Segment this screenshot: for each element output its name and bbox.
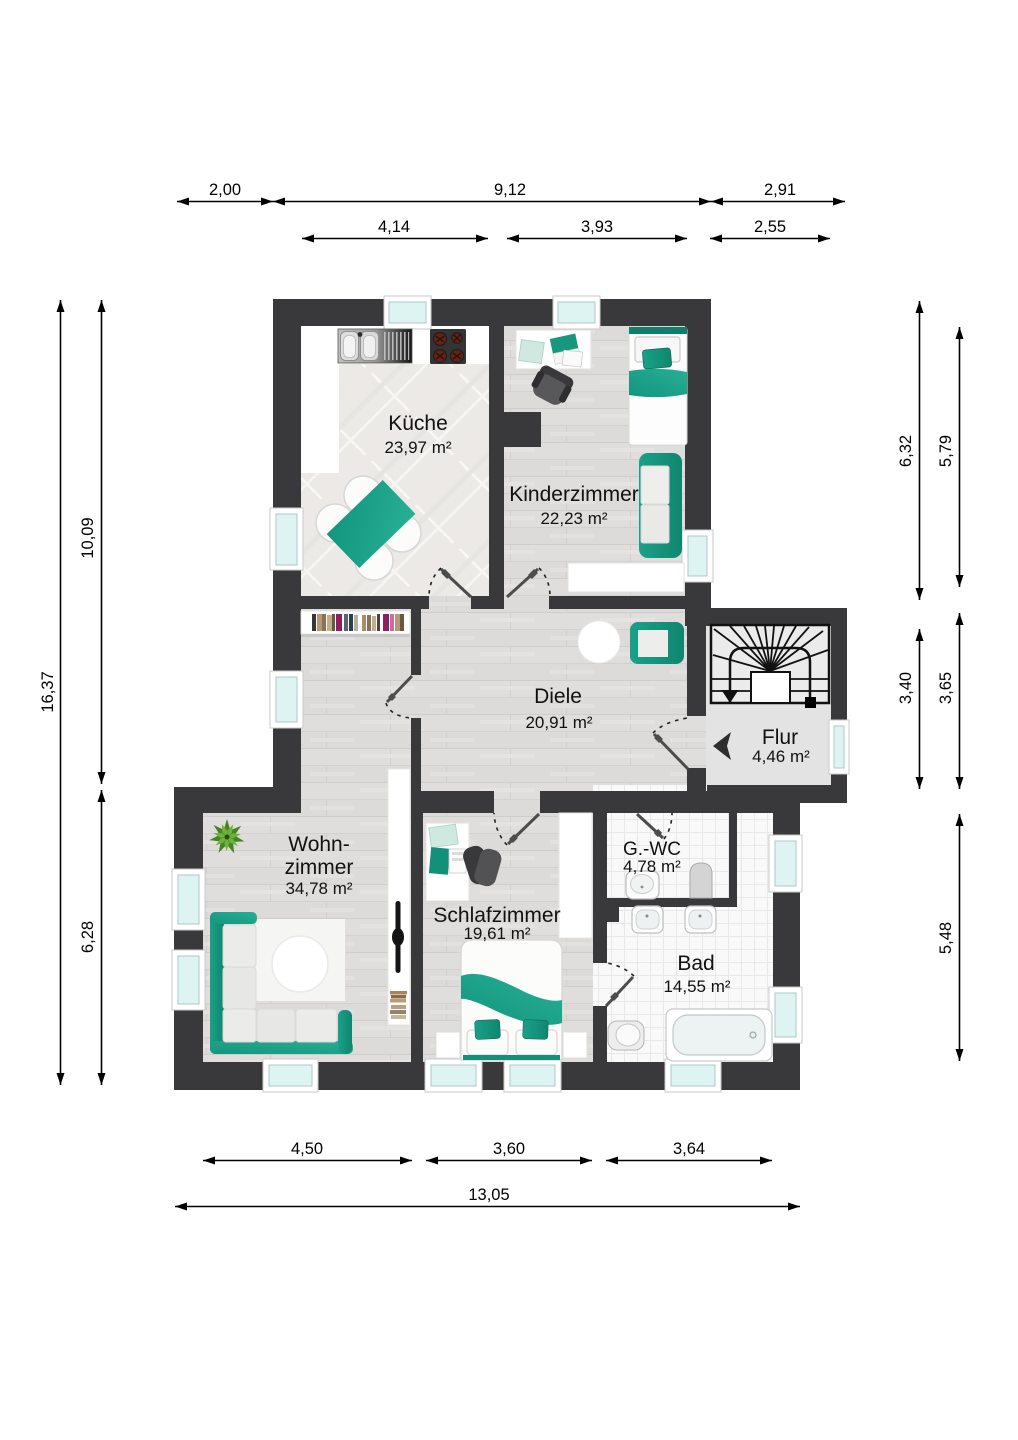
svg-text:10,09: 10,09 <box>79 517 97 558</box>
svg-text:5,79: 5,79 <box>937 435 955 467</box>
svg-text:14,55 m²: 14,55 m² <box>663 977 730 996</box>
svg-text:Bad: Bad <box>677 952 714 975</box>
svg-text:zimmer: zimmer <box>285 856 354 879</box>
svg-text:2,91: 2,91 <box>764 181 796 199</box>
svg-text:3,64: 3,64 <box>673 1140 705 1158</box>
svg-text:20,91 m²: 20,91 m² <box>525 713 592 732</box>
svg-text:3,65: 3,65 <box>937 672 955 704</box>
svg-text:9,12: 9,12 <box>494 181 526 199</box>
svg-text:2,55: 2,55 <box>754 218 786 236</box>
svg-text:5,48: 5,48 <box>937 922 955 954</box>
svg-text:Flur: Flur <box>762 726 798 749</box>
svg-text:3,93: 3,93 <box>581 218 613 236</box>
svg-text:4,78 m²: 4,78 m² <box>623 857 681 876</box>
svg-text:22,23 m²: 22,23 m² <box>540 509 607 528</box>
svg-text:4,50: 4,50 <box>291 1140 323 1158</box>
svg-text:Diele: Diele <box>534 685 582 708</box>
svg-text:16,37: 16,37 <box>39 671 57 712</box>
svg-text:34,78 m²: 34,78 m² <box>285 879 352 898</box>
svg-text:3,40: 3,40 <box>897 672 915 704</box>
svg-text:2,00: 2,00 <box>209 181 241 199</box>
svg-text:Wohn-: Wohn- <box>288 833 349 856</box>
svg-text:4,14: 4,14 <box>378 218 410 236</box>
svg-text:Küche: Küche <box>388 412 448 435</box>
svg-text:13,05: 13,05 <box>468 1186 509 1204</box>
svg-text:6,28: 6,28 <box>79 921 97 953</box>
svg-text:19,61 m²: 19,61 m² <box>463 924 530 943</box>
svg-text:6,32: 6,32 <box>897 435 915 467</box>
svg-text:23,97 m²: 23,97 m² <box>384 438 451 457</box>
svg-text:Kinderzimmer: Kinderzimmer <box>509 483 639 506</box>
svg-text:3,60: 3,60 <box>493 1140 525 1158</box>
svg-text:4,46 m²: 4,46 m² <box>752 747 810 766</box>
